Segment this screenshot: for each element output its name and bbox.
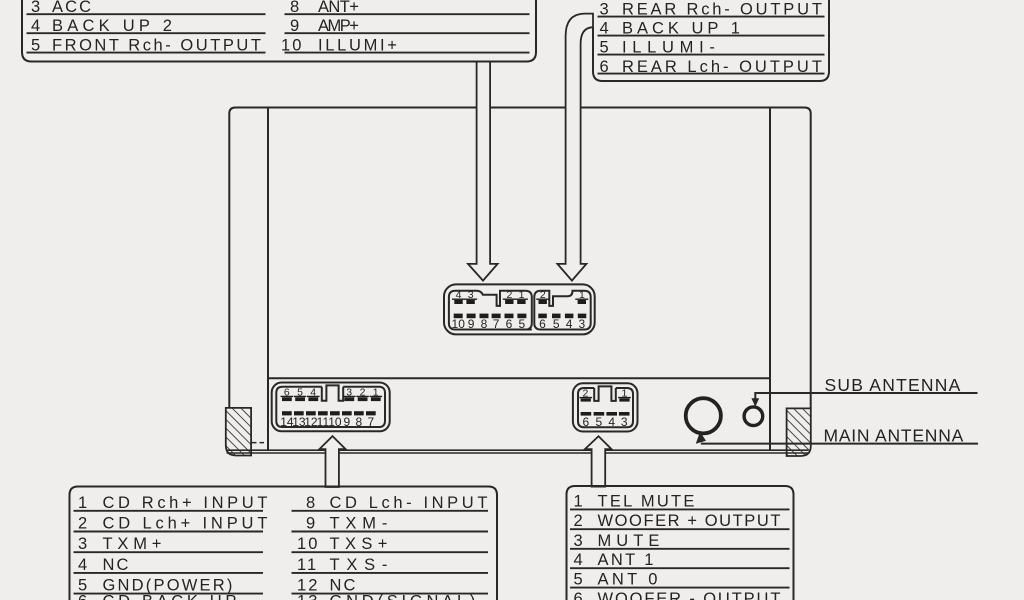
svg-text:3: 3	[621, 415, 628, 429]
svg-text:4: 4	[31, 17, 42, 35]
svg-text:1: 1	[621, 388, 627, 400]
svg-text:3: 3	[468, 289, 474, 301]
svg-text:AMP+: AMP+	[318, 17, 361, 35]
svg-text:6: 6	[583, 415, 590, 429]
svg-text:TEL MUTE: TEL MUTE	[598, 492, 697, 510]
svg-text:4: 4	[78, 556, 89, 574]
svg-text:4: 4	[574, 551, 585, 569]
svg-text:1: 1	[579, 289, 585, 301]
svg-text:3: 3	[579, 317, 586, 331]
svg-text:ACC: ACC	[52, 0, 93, 16]
svg-text:9: 9	[290, 17, 301, 35]
svg-text:5: 5	[596, 415, 603, 429]
svg-text:CD Rch+ INPUT: CD Rch+ INPUT	[103, 494, 270, 512]
svg-text:6: 6	[78, 593, 89, 600]
svg-text:ANT 1: ANT 1	[598, 551, 656, 569]
svg-text:7: 7	[368, 415, 375, 429]
svg-text:9: 9	[306, 515, 317, 533]
svg-text:2: 2	[506, 289, 512, 301]
svg-text:3: 3	[31, 0, 42, 16]
svg-text:4: 4	[566, 317, 573, 331]
svg-text:1: 1	[519, 289, 525, 301]
svg-text:4: 4	[456, 289, 462, 301]
svg-text:11: 11	[297, 556, 318, 574]
svg-text:10: 10	[281, 36, 304, 54]
svg-text:ANT+: ANT+	[318, 0, 361, 16]
svg-text:10: 10	[452, 317, 466, 331]
svg-text:5: 5	[297, 386, 303, 398]
svg-text:6: 6	[539, 317, 546, 331]
svg-text:8: 8	[356, 415, 363, 429]
svg-text:8: 8	[306, 494, 317, 512]
svg-text:REAR Lch- OUTPUT: REAR Lch- OUTPUT	[622, 58, 824, 76]
svg-text:WOOFER + OUTPUT: WOOFER + OUTPUT	[598, 512, 783, 530]
svg-text:CD Lch+ INPUT: CD Lch+ INPUT	[103, 515, 270, 533]
svg-text:1: 1	[373, 386, 379, 398]
svg-text:3: 3	[574, 532, 585, 550]
svg-text:4: 4	[600, 20, 611, 38]
svg-text:5: 5	[553, 317, 560, 331]
svg-text:4: 4	[310, 386, 316, 398]
svg-text:13: 13	[297, 593, 320, 600]
svg-text:4: 4	[608, 415, 615, 429]
svg-text:10: 10	[297, 535, 320, 553]
svg-text:3: 3	[600, 1, 611, 19]
svg-text:8: 8	[290, 0, 301, 16]
svg-text:6: 6	[284, 386, 290, 398]
svg-text:5: 5	[574, 571, 585, 589]
svg-text:7: 7	[493, 317, 500, 331]
svg-text:1: 1	[574, 492, 585, 510]
svg-text:2: 2	[540, 289, 546, 301]
svg-text:6: 6	[506, 317, 513, 331]
svg-text:5: 5	[519, 317, 526, 331]
svg-text:9: 9	[468, 317, 475, 331]
svg-text:6: 6	[600, 58, 611, 76]
svg-text:MUTE: MUTE	[598, 532, 662, 550]
svg-text:TXM+: TXM+	[103, 535, 164, 553]
svg-text:CD BACK UP: CD BACK UP	[103, 593, 239, 600]
svg-text:ILLUMI-: ILLUMI-	[622, 39, 717, 57]
svg-text:NC: NC	[103, 556, 131, 574]
svg-text:8: 8	[481, 317, 488, 331]
svg-text:1: 1	[78, 494, 89, 512]
svg-text:2: 2	[574, 512, 585, 530]
svg-text:6: 6	[574, 590, 585, 600]
svg-text:10: 10	[328, 415, 342, 429]
svg-text:5: 5	[600, 39, 611, 57]
svg-text:2: 2	[582, 388, 588, 400]
svg-text:5: 5	[31, 36, 42, 54]
svg-text:BACK UP 1: BACK UP 1	[622, 20, 742, 38]
svg-text:2: 2	[78, 515, 89, 533]
svg-text:ILLUMI+: ILLUMI+	[318, 36, 399, 54]
svg-text:ANT 0: ANT 0	[598, 571, 660, 589]
svg-text:CD Lch- INPUT: CD Lch- INPUT	[330, 494, 490, 512]
svg-text:9: 9	[344, 415, 351, 429]
svg-text:BACK UP 2: BACK UP 2	[52, 17, 174, 35]
svg-text:3: 3	[346, 386, 352, 398]
svg-text:3: 3	[78, 535, 89, 553]
svg-text:MAIN ANTENNA: MAIN ANTENNA	[824, 425, 965, 445]
svg-text:SUB ANTENNA: SUB ANTENNA	[825, 375, 962, 395]
svg-text:WOOFER - OUTPUT: WOOFER - OUTPUT	[598, 590, 783, 600]
svg-text:2: 2	[360, 386, 366, 398]
svg-text:REAR Rch- OUTPUT: REAR Rch- OUTPUT	[622, 1, 824, 19]
svg-text:FRONT Rch- OUTPUT: FRONT Rch- OUTPUT	[52, 36, 263, 54]
